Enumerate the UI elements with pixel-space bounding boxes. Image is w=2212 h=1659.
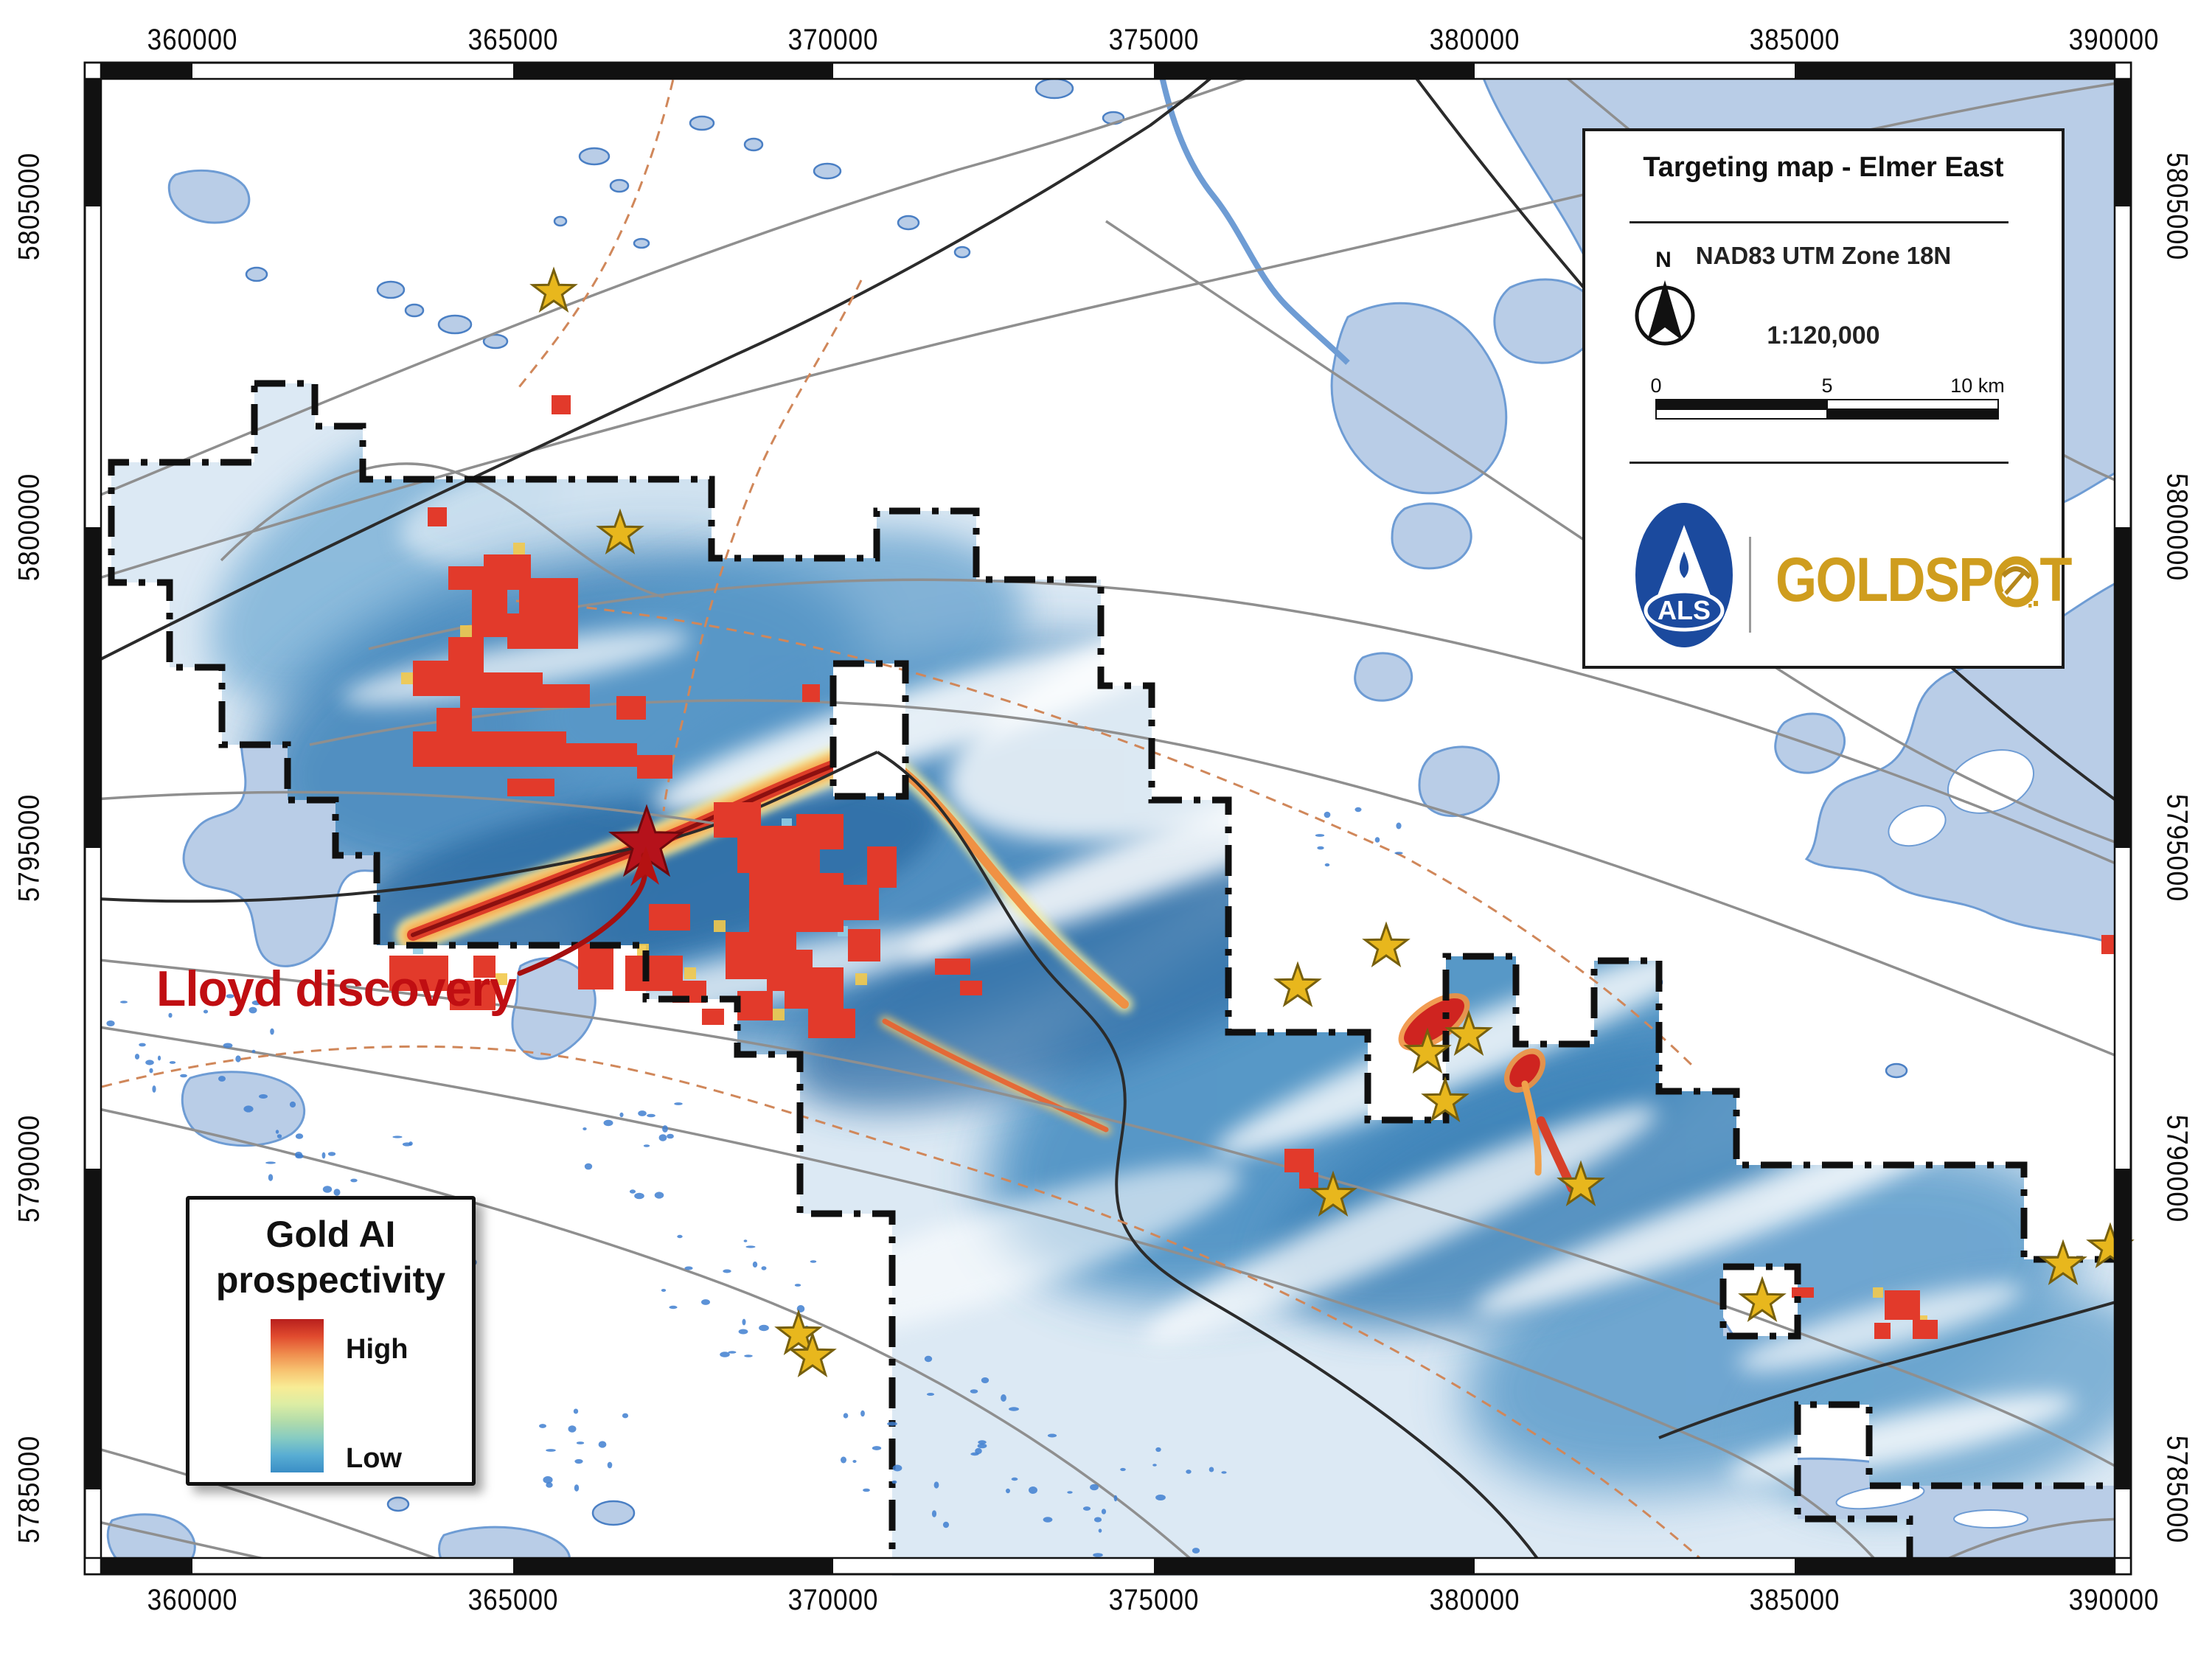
high-prospectivity-patch (796, 814, 844, 849)
lloyd-discovery-annotation: Lloyd discovery (156, 960, 516, 1018)
high-prospectivity-patch (702, 1009, 724, 1025)
small-pond-dot (1396, 823, 1401, 829)
frame-band-segment (513, 1558, 833, 1574)
small-pond-dot (568, 1425, 577, 1432)
pond (63, 131, 77, 142)
small-pond-dot (759, 1325, 769, 1331)
small-pond-dot (753, 1262, 757, 1267)
small-pond-dot (742, 1319, 746, 1326)
pond (1036, 79, 1073, 98)
frame-corner (85, 1558, 101, 1574)
small-pond-dot (1099, 1528, 1102, 1532)
small-pond-dot (669, 1306, 677, 1309)
small-pond-dot (863, 1489, 870, 1492)
lake (1495, 279, 1596, 363)
frame-band-segment (85, 848, 101, 1169)
frame-band-segment (833, 1558, 1154, 1574)
small-pond-dot (1094, 1517, 1102, 1523)
small-pond-dot (1048, 1434, 1057, 1438)
heat-fringe-pixel (401, 672, 413, 684)
high-prospectivity-patch (960, 981, 982, 995)
small-pond-dot (893, 1465, 902, 1472)
high-prospectivity-patch (802, 684, 820, 702)
x-tick-label: 360000 (147, 24, 238, 57)
x-tick-label: 380000 (1430, 1584, 1520, 1617)
small-pond-dot (334, 1189, 341, 1196)
high-prospectivity-patch (472, 590, 507, 637)
heat-fringe-pixel (684, 967, 696, 979)
small-pond-dot (925, 1356, 932, 1362)
y-tick-label: 5805000 (13, 153, 46, 260)
small-pond-dot (149, 1068, 153, 1074)
legend-gradient-bar (271, 1319, 324, 1472)
frame-band-segment (85, 1489, 101, 1558)
small-pond-dot (1315, 834, 1324, 837)
x-tick-label: 380000 (1430, 24, 1520, 57)
small-pond-dot (259, 1094, 268, 1099)
small-pond-dot (1114, 1495, 1118, 1502)
y-tick-label: 5795000 (2160, 794, 2194, 902)
frame-band-segment (1475, 63, 1795, 79)
small-pond-dot (1394, 852, 1402, 855)
small-pond-dot (810, 1260, 817, 1262)
heat-white-streak (1278, 658, 1819, 935)
small-pond-dot (943, 1522, 949, 1528)
legend-title-line1: Gold AI (189, 1213, 472, 1256)
small-pond-dot (655, 1192, 664, 1198)
small-pond-dot (539, 1424, 546, 1428)
small-pond-dot (1186, 1470, 1191, 1474)
small-pond-dot (744, 1354, 753, 1357)
frame-band-segment (2115, 1169, 2131, 1489)
pond (554, 217, 566, 226)
frame-band-segment (1795, 63, 2114, 79)
small-pond-dot (1083, 1506, 1091, 1511)
small-pond-dot (1209, 1467, 1214, 1472)
small-pond-dot (328, 1152, 335, 1156)
x-tick-label: 385000 (1750, 24, 1840, 57)
small-pond-dot (392, 1135, 402, 1138)
scalebar-5: 5 (1821, 375, 1832, 397)
y-tick-label: 5790000 (2160, 1115, 2194, 1222)
small-pond-dot (934, 1481, 939, 1488)
lake-island (1954, 1510, 2028, 1528)
scalebar-10km: 10 km (1950, 375, 2005, 397)
y-tick-label: 5800000 (13, 473, 46, 581)
small-pond-dot (892, 1481, 897, 1484)
small-pond-dot (1120, 1468, 1126, 1471)
heat-fringe-pixel (773, 1009, 785, 1020)
map-title: Targeting map - Elmer East (1585, 152, 2062, 184)
high-prospectivity-patch (448, 566, 484, 590)
small-pond-dot (723, 1270, 731, 1273)
high-prospectivity-patch (413, 731, 566, 767)
frame-band-segment (192, 1558, 513, 1574)
legend-low-label: Low (346, 1443, 402, 1475)
high-prospectivity-patch (543, 684, 590, 708)
small-pond-dot (270, 1029, 274, 1035)
small-pond-dot (268, 1174, 273, 1180)
targeting-map-page: 3600003650003700003750003800003850003900… (0, 0, 2212, 1659)
frame-corner (85, 63, 101, 79)
heat-fringe-pixel (855, 973, 867, 985)
small-pond-dot (145, 1060, 154, 1065)
small-pond-dot (1012, 1478, 1018, 1481)
small-pond-dot (701, 1299, 710, 1305)
frame-band-segment (85, 527, 101, 848)
lake (1355, 653, 1412, 700)
high-prospectivity-patch (737, 991, 773, 1020)
frame-band-segment (2115, 206, 2131, 527)
frame-band-segment (2115, 848, 2131, 1169)
small-pond-dot (844, 1413, 849, 1418)
small-pond-dot (235, 1055, 240, 1062)
small-pond-dot (290, 1102, 296, 1107)
small-pond-dot (746, 1245, 756, 1248)
scale-bar: 0 5 10 km (1644, 375, 2013, 437)
small-pond-dot (582, 1127, 586, 1130)
small-pond-dot (243, 1105, 253, 1112)
high-prospectivity-patch (935, 959, 970, 975)
small-pond-dot (1324, 812, 1331, 818)
small-pond-dot (667, 1134, 674, 1139)
logo-separator (1749, 537, 1751, 633)
small-pond-dot (604, 1120, 613, 1126)
small-pond-dot (720, 1352, 730, 1357)
small-pond-dot (1375, 837, 1380, 842)
small-pond-dot (574, 1459, 582, 1464)
pond (1886, 1064, 1907, 1077)
high-prospectivity-patch (1885, 1290, 1920, 1320)
high-prospectivity-patch (552, 395, 571, 414)
small-pond-dot (970, 1389, 978, 1394)
river (1159, 63, 1348, 363)
small-pond-dot (574, 1484, 579, 1491)
small-pond-dot (152, 1085, 156, 1093)
pond (246, 268, 267, 281)
pond (41, 116, 65, 131)
goldspot-logo: GOLDSP T (1775, 544, 2071, 616)
small-pond-dot (135, 1054, 139, 1060)
als-wordmark: ALS (1658, 595, 1711, 625)
legend-box: Gold AI prospectivity High Low (186, 1196, 476, 1486)
pond (593, 1501, 634, 1525)
x-tick-label: 375000 (1109, 24, 1200, 57)
small-pond-dot (218, 1076, 226, 1082)
small-pond-dot (1001, 1394, 1006, 1402)
small-pond-dot (1093, 1553, 1103, 1557)
small-pond-dot (661, 1289, 666, 1292)
high-prospectivity-patch (649, 904, 690, 931)
frame-band-segment (101, 1558, 192, 1574)
small-pond-dot (852, 1460, 856, 1463)
frame-band-segment (85, 1169, 101, 1489)
small-pond-dot (684, 1267, 692, 1270)
high-prospectivity-patch (1874, 1323, 1891, 1339)
high-prospectivity-patch (616, 696, 646, 720)
x-tick-label: 360000 (147, 1584, 238, 1617)
frame-band-segment (192, 63, 513, 79)
small-pond-dot (677, 1235, 682, 1238)
high-prospectivity-patch (808, 1009, 855, 1038)
small-pond-dot (739, 1329, 748, 1335)
small-pond-dot (180, 1074, 187, 1078)
legend-high-label: High (346, 1334, 408, 1366)
x-tick-label: 365000 (468, 1584, 559, 1617)
small-pond-dot (1155, 1495, 1166, 1500)
small-pond-dot (1355, 807, 1362, 812)
small-pond-dot (622, 1413, 628, 1419)
small-pond-dot (762, 1266, 767, 1270)
small-pond-dot (1006, 1489, 1010, 1493)
frame-band-segment (1795, 1558, 2114, 1574)
north-label: N (1655, 248, 1672, 272)
frame-band-segment (833, 63, 1154, 79)
x-tick-label: 370000 (788, 1584, 879, 1617)
small-pond-dot (744, 1239, 748, 1242)
heat-fringe-pixel (513, 543, 525, 554)
lake (1392, 504, 1471, 568)
pond (690, 116, 714, 130)
high-prospectivity-patch (637, 755, 672, 779)
small-pond-dot (932, 1510, 936, 1517)
high-prospectivity-patch (1913, 1320, 1938, 1339)
heat-fringe-pixel (714, 920, 726, 932)
heat-fringe-pixel (460, 625, 472, 637)
goldspot-text-left: GOLDSP (1775, 544, 1993, 616)
small-pond-dot (120, 1001, 128, 1004)
small-pond-dot (577, 1441, 584, 1444)
frame-corner (2115, 1558, 2131, 1574)
small-pond-dot (887, 1422, 897, 1425)
high-prospectivity-patch (428, 507, 447, 526)
small-pond-dot (323, 1186, 332, 1192)
high-prospectivity-patch (519, 578, 578, 613)
small-pond-dot (841, 1457, 846, 1464)
small-pond-dot (608, 1462, 613, 1469)
y-tick-label: 5800000 (2160, 473, 2194, 581)
small-pond-dot (574, 1409, 578, 1414)
x-tick-label: 390000 (2069, 24, 2160, 57)
goldspot-pickaxe-o-icon (1992, 549, 2041, 611)
small-pond-dot (1152, 1464, 1157, 1466)
title-box: Targeting map - Elmer East NAD83 UTM Zon… (1582, 128, 2065, 669)
pond (898, 216, 919, 229)
pond (439, 316, 471, 333)
small-pond-dot (1090, 1484, 1099, 1491)
small-pond-dot (927, 1393, 934, 1396)
x-tick-label: 390000 (2069, 1584, 2160, 1617)
small-pond-dot (674, 1102, 683, 1105)
als-logo: ALS (1631, 500, 1778, 662)
small-pond-dot (252, 1050, 256, 1053)
x-tick-label: 385000 (1750, 1584, 1840, 1617)
x-tick-label: 375000 (1109, 1584, 1200, 1617)
small-pond-dot (585, 1164, 592, 1170)
small-pond-dot (1029, 1486, 1037, 1494)
gold-occurrence-star-icon (1366, 925, 1408, 964)
small-pond-dot (638, 1110, 647, 1116)
small-pond-dot (158, 1056, 161, 1061)
small-pond-dot (265, 1161, 276, 1164)
small-pond-dot (1325, 863, 1330, 866)
small-pond-dot (1009, 1407, 1019, 1411)
small-pond-dot (795, 1284, 801, 1287)
small-pond-dot (106, 1020, 114, 1026)
small-pond-dot (975, 1448, 982, 1454)
pond (611, 180, 628, 192)
frame-band-segment (1154, 63, 1475, 79)
high-prospectivity-patch (578, 944, 613, 990)
small-pond-dot (647, 1114, 655, 1118)
dashed-structure-line (516, 63, 677, 391)
high-prospectivity-patch (785, 967, 844, 1009)
pond (634, 239, 649, 248)
lake (182, 1072, 304, 1146)
x-tick-label: 365000 (468, 24, 559, 57)
high-prospectivity-patch (507, 613, 578, 649)
small-pond-dot (322, 1152, 326, 1159)
small-pond-dot (543, 1476, 552, 1484)
lake (1419, 747, 1499, 816)
small-pond-dot (1317, 846, 1324, 850)
high-prospectivity-patch (867, 846, 897, 888)
high-prospectivity-patch (413, 661, 460, 696)
small-pond-dot (170, 1061, 175, 1064)
small-pond-dot (1192, 1548, 1200, 1554)
small-pond-dot (978, 1444, 987, 1449)
small-pond-dot (295, 1154, 303, 1159)
small-pond-dot (350, 1179, 357, 1183)
small-pond-dot (139, 1043, 146, 1047)
logo-row: ALS GOLDSP T (1585, 500, 2062, 662)
scalebar-0: 0 (1650, 375, 1661, 397)
high-prospectivity-patch (749, 873, 844, 932)
frame-band-segment (513, 63, 833, 79)
small-pond-dot (662, 1125, 668, 1133)
small-pond-dot (276, 1130, 279, 1133)
small-pond-dot (1102, 1509, 1106, 1514)
y-tick-label: 5795000 (13, 794, 46, 902)
high-prospectivity-patch (1792, 1287, 1814, 1298)
frame-band-segment (85, 79, 101, 206)
pond (814, 164, 841, 178)
small-pond-dot (981, 1377, 989, 1383)
small-pond-dot (619, 1113, 623, 1117)
frame-band-segment (101, 63, 192, 79)
small-pond-dot (1067, 1491, 1072, 1493)
small-pond-dot (728, 1351, 737, 1353)
high-prospectivity-patch (437, 708, 472, 731)
y-tick-label: 5785000 (13, 1436, 46, 1543)
high-prospectivity-patch (460, 672, 543, 708)
goldspot-text-right: T (2039, 544, 2070, 616)
heat-fringe-pixel (1873, 1287, 1883, 1298)
small-pond-dot (634, 1193, 644, 1200)
y-tick-label: 5805000 (2160, 153, 2194, 260)
small-pond-dot (277, 1134, 282, 1138)
small-pond-dot (1043, 1517, 1053, 1522)
legend-title-line2: prospectivity (189, 1259, 472, 1301)
gold-occurrence-star-icon (1277, 964, 1319, 1004)
small-pond-dot (296, 1133, 303, 1139)
small-pond-dot (630, 1189, 636, 1193)
small-pond-dot (659, 1134, 667, 1141)
small-pond-dot (1221, 1471, 1226, 1474)
frame-corner (2115, 63, 2131, 79)
pond (406, 305, 423, 316)
y-tick-label: 5785000 (2160, 1436, 2194, 1543)
high-prospectivity-patch (566, 743, 637, 767)
title-divider-bottom (1630, 462, 2008, 464)
high-prospectivity-patch (1284, 1149, 1314, 1172)
pond (580, 148, 609, 164)
frame-band-segment (2115, 1489, 2131, 1558)
small-pond-dot (599, 1441, 607, 1447)
pond (388, 1498, 408, 1511)
high-prospectivity-patch (848, 929, 880, 961)
frame-band-segment (85, 206, 101, 527)
high-prospectivity-patch (507, 779, 554, 796)
small-pond-dot (223, 1043, 233, 1048)
pond (745, 139, 762, 150)
small-pond-dot (546, 1449, 556, 1452)
small-pond-dot (860, 1411, 865, 1417)
scale-ratio: 1:120,000 (1585, 321, 2062, 350)
small-pond-dot (872, 1446, 881, 1450)
small-pond-dot (403, 1142, 411, 1146)
high-prospectivity-patch (1299, 1172, 1318, 1189)
frame-band-segment (1154, 1558, 1475, 1574)
high-prospectivity-patch (844, 885, 879, 920)
small-pond-dot (1155, 1447, 1161, 1452)
title-divider-top (1630, 221, 2008, 223)
x-tick-label: 370000 (788, 24, 879, 57)
pond (378, 282, 404, 298)
pond (955, 247, 970, 257)
small-pond-dot (644, 1144, 650, 1147)
frame-band-segment (1475, 1558, 1795, 1574)
small-pond-dot (546, 1482, 552, 1487)
frame-band-segment (2115, 527, 2131, 848)
lake (169, 170, 249, 223)
y-tick-label: 5790000 (13, 1115, 46, 1222)
frame-band-segment (2115, 79, 2131, 206)
lake (1332, 303, 1506, 493)
